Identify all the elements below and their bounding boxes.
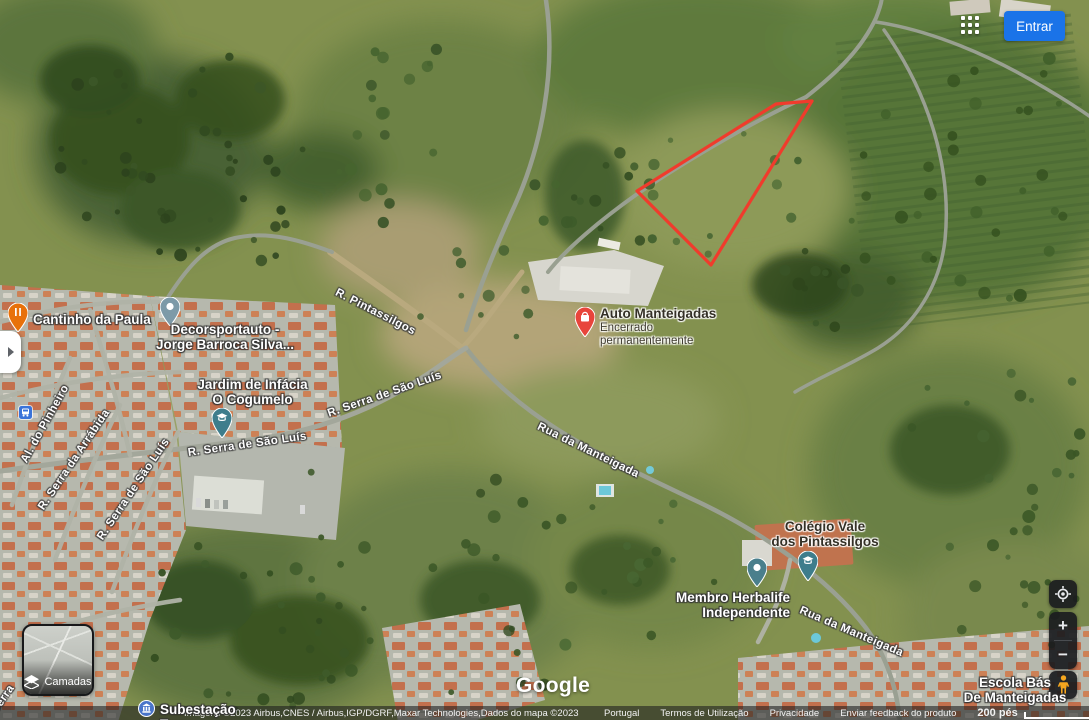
satellite-imagery [0, 0, 1089, 720]
layers-button[interactable]: Camadas [22, 624, 94, 696]
school-pin-icon[interactable] [212, 408, 232, 438]
privacy-link[interactable]: Privacidade [770, 708, 820, 719]
my-location-button[interactable] [1049, 580, 1077, 608]
poi-label[interactable]: Colégio Vale dos Pintassilgos [765, 519, 885, 549]
restaurant-pin-icon[interactable] [8, 303, 28, 332]
my-location-icon [1055, 586, 1071, 602]
satellite-map[interactable]: R. Pintassilgos R. Serra de São Luís R. … [0, 0, 1089, 720]
transit-stop-icon[interactable] [19, 406, 32, 419]
utility-pin-icon[interactable] [138, 700, 155, 717]
feedback-link[interactable]: Enviar feedback do produto [840, 708, 956, 719]
shopping-pin-icon[interactable] [575, 307, 595, 337]
sign-in-button[interactable]: Entrar [1004, 11, 1065, 41]
poi-escola-basica[interactable]: Escola Bás De Manteigadas [950, 675, 1080, 705]
poi-label[interactable]: Cantinho da Paula [33, 312, 151, 327]
layers-label: Camadas [44, 676, 91, 688]
google-apps-grid-icon[interactable] [961, 16, 983, 38]
school-pin-icon[interactable] [798, 551, 818, 581]
poi-label[interactable]: Auto Manteigadas [600, 306, 716, 321]
map-scale: 200 pés [977, 707, 1089, 719]
poi-label[interactable]: Membro Herbalife Independente [660, 590, 790, 620]
poi-label[interactable]: Decorsportauto - Jorge Barroca Silva... [140, 322, 310, 352]
google-logo[interactable]: Google [516, 674, 590, 698]
imagery-attribution: Imagens ©2023 Airbus,CNES / Airbus,IGP/D… [184, 708, 579, 719]
zoom-control[interactable]: + − [1049, 612, 1077, 669]
zoom-in-button[interactable]: + [1049, 612, 1077, 640]
bus-icon [21, 408, 30, 417]
poi-label[interactable]: Subestação Terro... [160, 702, 236, 720]
poi-label[interactable]: Jardim de Infácia O Cogumelo [175, 377, 330, 407]
place-pin-icon[interactable] [747, 558, 767, 587]
chevron-right-icon [8, 347, 14, 357]
zoom-out-button[interactable]: − [1049, 641, 1077, 669]
terms-link[interactable]: Termos de Utilização [660, 708, 748, 719]
scale-bar [1024, 712, 1089, 719]
poi-status: Encerrado permanentemente [600, 322, 693, 347]
country-label: Portugal [604, 708, 639, 719]
layers-icon [24, 675, 39, 689]
side-panel-expand-button[interactable] [0, 331, 21, 373]
